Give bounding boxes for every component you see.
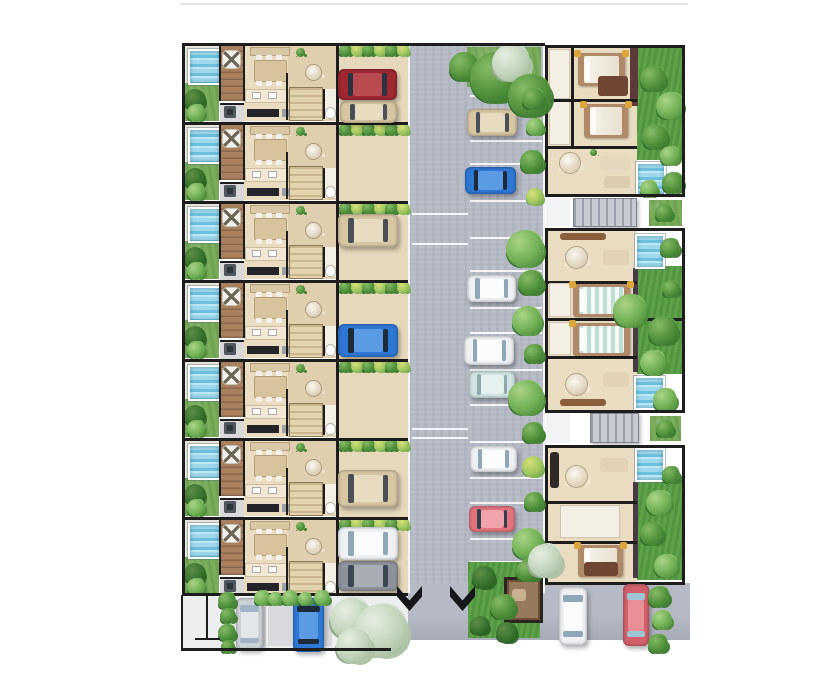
indoor-plant-bush [296,522,305,531]
toilet [325,423,336,435]
dining-chair [256,239,262,244]
parked-car-white [464,336,514,365]
street-hedge-bush [220,608,236,624]
car-part [352,475,383,502]
deck-parasol [223,51,240,68]
kitchen-sink [252,171,261,178]
kitchen-island [247,504,279,512]
dining-chair [266,371,272,376]
toilet [325,186,336,198]
car-part [476,340,502,361]
site-plan-rendering [0,0,838,695]
unit-divider-wall [182,359,408,362]
street-car-white [559,587,587,645]
dining-chair [276,555,282,560]
plunge-pool [188,286,221,322]
park-bush [472,566,496,590]
deck-parasol [223,209,240,226]
plunge-pool [188,207,221,243]
driveway-hedge-bush [397,202,410,215]
kitchen-island [247,346,279,354]
exterior-staircase [573,198,637,227]
car-part [299,610,319,640]
dining-chair [266,81,272,86]
driveway-hedge-bush [397,439,410,452]
dining-chair [276,397,282,402]
garden-wall [219,361,221,417]
kitchen-island [247,109,279,117]
car-part [505,450,509,469]
park-bush [528,544,562,578]
interior-wall [286,547,288,594]
dining-table [254,60,287,82]
plunge-pool [188,365,221,401]
interior-wall [286,389,288,436]
toilet [325,107,336,119]
dining-chair [266,134,272,139]
kitchen-sink [268,92,277,99]
parked-car-white [467,275,516,302]
kitchen-island [247,267,279,275]
car-part [350,104,355,121]
road-hedge-bush [522,456,544,478]
exterior-staircase [590,413,639,443]
interior-wall [243,519,245,575]
unit-divider-wall [182,201,408,204]
dining-chair [266,555,272,560]
garden-wall [219,282,221,338]
driveway-hedge-bush [397,518,410,531]
garden-wall [219,440,221,496]
street-hedge-bush [652,610,672,630]
dining-chair [266,160,272,165]
entry-walkway [546,413,570,443]
car-part [504,279,508,298]
toilet [325,265,336,277]
kitchen-sink [252,329,261,336]
dining-chair [256,134,262,139]
garden-bush [187,499,205,517]
deck-parasol [223,367,240,384]
plunge-pool [188,444,221,480]
plunge-pool [188,49,221,85]
car-part [628,598,645,633]
interior-wall [286,468,288,515]
parked-car-gray [338,561,398,591]
parking-stall-line [412,213,468,215]
kitchen-island [247,425,279,433]
kitchen-sink [268,566,277,573]
kitchen-sink [252,487,261,494]
car-part [481,450,505,469]
villa-block-top-walls [545,45,685,197]
car-part [383,104,388,120]
parked-car-white [338,527,398,560]
dining-chair [256,476,262,481]
dining-chair [276,476,282,481]
dining-chair [256,318,262,323]
car-part [564,600,582,632]
washer [224,501,236,513]
garden-bush [187,104,205,122]
garden-square-bush [656,420,674,438]
driveway-hedge-bush [397,123,410,136]
toilet [325,502,336,514]
washer [224,343,236,355]
dining-chair [256,397,262,402]
car-part [503,171,507,190]
breakfast-table [306,539,321,554]
indoor-plant-bush [296,285,305,294]
car-part [480,510,504,529]
driveway-wall [336,43,339,595]
dining-table [254,139,287,161]
breakfast-table [306,144,321,159]
driveway-hedge-bush [397,360,410,373]
car-part [352,532,383,556]
street-boundary-line [181,648,391,651]
gazebo-table [512,589,526,601]
road-hedge-bush [526,188,544,206]
dining-chair [276,81,282,86]
indoor-plant-bush [296,364,305,373]
dining-table [254,376,287,398]
interior-wall [243,203,245,259]
road-hedge-bush [524,492,544,512]
breakfast-table [306,460,321,475]
parking-stall-line [412,437,468,439]
car-part [352,219,383,243]
kitchen-sink [268,329,277,336]
garden-bush [187,420,205,438]
plunge-pool [188,128,221,164]
car-part [477,509,481,529]
survey-marker-cap [195,638,220,640]
interior-wall [243,45,245,101]
dining-chair [256,529,262,534]
dining-chair [256,213,262,218]
interior-wall [286,73,288,120]
car-part [240,605,259,611]
road-hedge-bush [512,306,542,336]
dining-chair [276,239,282,244]
toilet [325,344,336,356]
washer [224,422,236,434]
car-part [348,328,353,353]
street-car-blue [293,598,324,652]
interior-wall [286,152,288,199]
interior-wall [243,124,245,180]
parked-car-beige [338,214,398,247]
dining-table [254,455,287,477]
breakfast-table [306,223,321,238]
road-hedge-bush [522,422,544,444]
garden-bush [187,183,205,201]
dining-chair [276,160,282,165]
interior-wall [243,440,245,496]
dining-chair [266,397,272,402]
car-part [475,278,479,299]
car-part [354,104,384,120]
dining-chair [256,450,262,455]
parking-stall-line [470,140,542,142]
dining-chair [276,55,282,60]
garden-wall [219,519,221,575]
interior-wall [243,282,245,338]
interior-wall [286,231,288,278]
car-part [352,329,383,353]
dining-chair [256,371,262,376]
car-part [477,374,481,395]
road-hedge-bush [508,380,544,416]
car-part [382,73,387,95]
staircase [289,324,323,358]
parked-car-blue [465,167,516,194]
kitchen-sink [268,408,277,415]
parked-car-blue [338,324,398,357]
car-part [479,113,505,132]
kitchen-sink [252,566,261,573]
road-hedge-bush [526,118,544,136]
kitchen-sink [268,487,277,494]
kitchen-sink [268,171,277,178]
parked-car-pink [469,506,515,532]
breakfast-table [306,381,321,396]
car-part [473,339,478,361]
washer [224,106,236,118]
street-car-coral [623,584,649,646]
car-part [348,218,353,243]
car-part [241,609,258,638]
parking-stall-line [266,598,268,646]
staircase [289,482,323,516]
unit-divider-wall [182,517,408,520]
parking-stall-line [412,428,468,430]
dining-chair [256,160,262,165]
staircase [289,166,323,200]
breakfast-table [306,65,321,80]
unit-divider-wall [182,438,408,441]
plunge-pool [188,523,221,559]
dining-chair [276,529,282,534]
car-part [476,112,481,133]
car-part [563,631,582,637]
indoor-plant-bush [296,206,305,215]
driveway [338,124,408,201]
car-part [348,531,353,556]
kitchen-sink [252,250,261,257]
unit-divider-wall [182,280,408,283]
parked-car-beige [340,101,397,123]
dining-chair [256,81,262,86]
parked-car-red [338,69,397,100]
garden-wall [219,203,221,259]
road-hedge-bush [522,88,544,110]
villa-block-middle-walls [545,228,685,413]
dining-chair [266,239,272,244]
car-part [348,565,353,588]
dining-table [254,218,287,240]
entry-walkway [546,198,570,226]
parked-car-beige [467,109,517,136]
car-part [504,510,508,529]
survey-marker [206,596,208,638]
street-hedge-bush [268,592,282,606]
indoor-plant-bush [296,443,305,452]
dining-table [254,534,287,556]
car-part [383,532,388,556]
dining-chair [276,318,282,323]
street-hedge-bush [648,586,670,608]
dining-chair [266,318,272,323]
deck-parasol [223,525,240,542]
car-part [480,375,504,394]
street-boundary-line [181,595,183,650]
garden-bush [187,341,205,359]
staircase [289,403,323,437]
dining-table [254,297,287,319]
park-bush [496,622,518,644]
street-car-silver [236,598,263,650]
car-part [627,593,646,600]
car-part [479,279,504,298]
indoor-plant-bush [296,48,305,57]
dining-chair [256,55,262,60]
street-hedge-bush [221,640,235,654]
staircase [289,87,323,121]
car-part [348,73,353,97]
dining-chair [276,371,282,376]
deck-parasol [223,288,240,305]
dining-chair [276,292,282,297]
kitchen-island [247,188,279,196]
car-part [505,113,509,132]
perimeter-wall-top [182,43,545,46]
dining-chair [266,529,272,534]
park-bush [470,616,490,636]
washer [224,580,236,592]
car-part [627,631,645,637]
breakfast-table [306,302,321,317]
kitchen-sink [268,250,277,257]
parking-stall-line [412,243,468,245]
car-part [478,449,482,469]
dining-chair [266,55,272,60]
driveway [338,361,408,438]
dining-chair [256,555,262,560]
parked-car-beige [338,470,398,507]
car-part [383,565,388,587]
dining-chair [266,450,272,455]
interior-wall [243,361,245,417]
car-part [352,73,383,95]
car-part [474,170,479,191]
street-hedge-bush [314,590,330,606]
garden-wall [219,124,221,180]
car-part [563,595,583,602]
car-part [352,565,383,587]
car-part [348,474,353,502]
dining-chair [276,450,282,455]
car-part [383,219,388,243]
deck-parasol [223,130,240,147]
street-tree-bush [336,628,372,664]
kitchen-sink [252,408,261,415]
garden-square-bush [655,204,673,222]
road-hedge-bush [524,344,544,364]
driveway-hedge-bush [397,281,410,294]
dining-chair [266,213,272,218]
road-hedge-bush [520,150,544,174]
site-boundary-faint [180,3,688,5]
car-part [383,475,388,502]
dining-chair [256,292,262,297]
staircase [289,245,323,279]
dining-chair [266,292,272,297]
site-plan [0,0,838,695]
car-part [477,171,504,190]
car-part [297,606,319,612]
road-hedge-bush [518,270,544,296]
dining-chair [266,476,272,481]
indoor-plant-bush [296,127,305,136]
street-hedge-bush [282,590,298,606]
car-part [504,375,508,394]
street-hedge-bush [648,634,668,654]
parked-car-white [470,446,517,472]
dining-chair [276,134,282,139]
car-part [240,638,258,643]
perimeter-wall-left [182,43,185,595]
washer [224,264,236,276]
garden-bush [187,262,205,280]
road-hedge-bush [506,230,544,268]
kitchen-sink [252,92,261,99]
villa-block-bottom-walls [545,445,685,585]
washer [224,185,236,197]
deck-parasol [223,446,240,463]
car-part [502,340,506,361]
interior-wall [286,310,288,357]
street-hedge-bush [298,592,312,606]
garden-wall [219,45,221,101]
car-part [298,639,319,644]
dining-chair [276,213,282,218]
park-bush [490,594,516,620]
car-part [383,329,388,353]
